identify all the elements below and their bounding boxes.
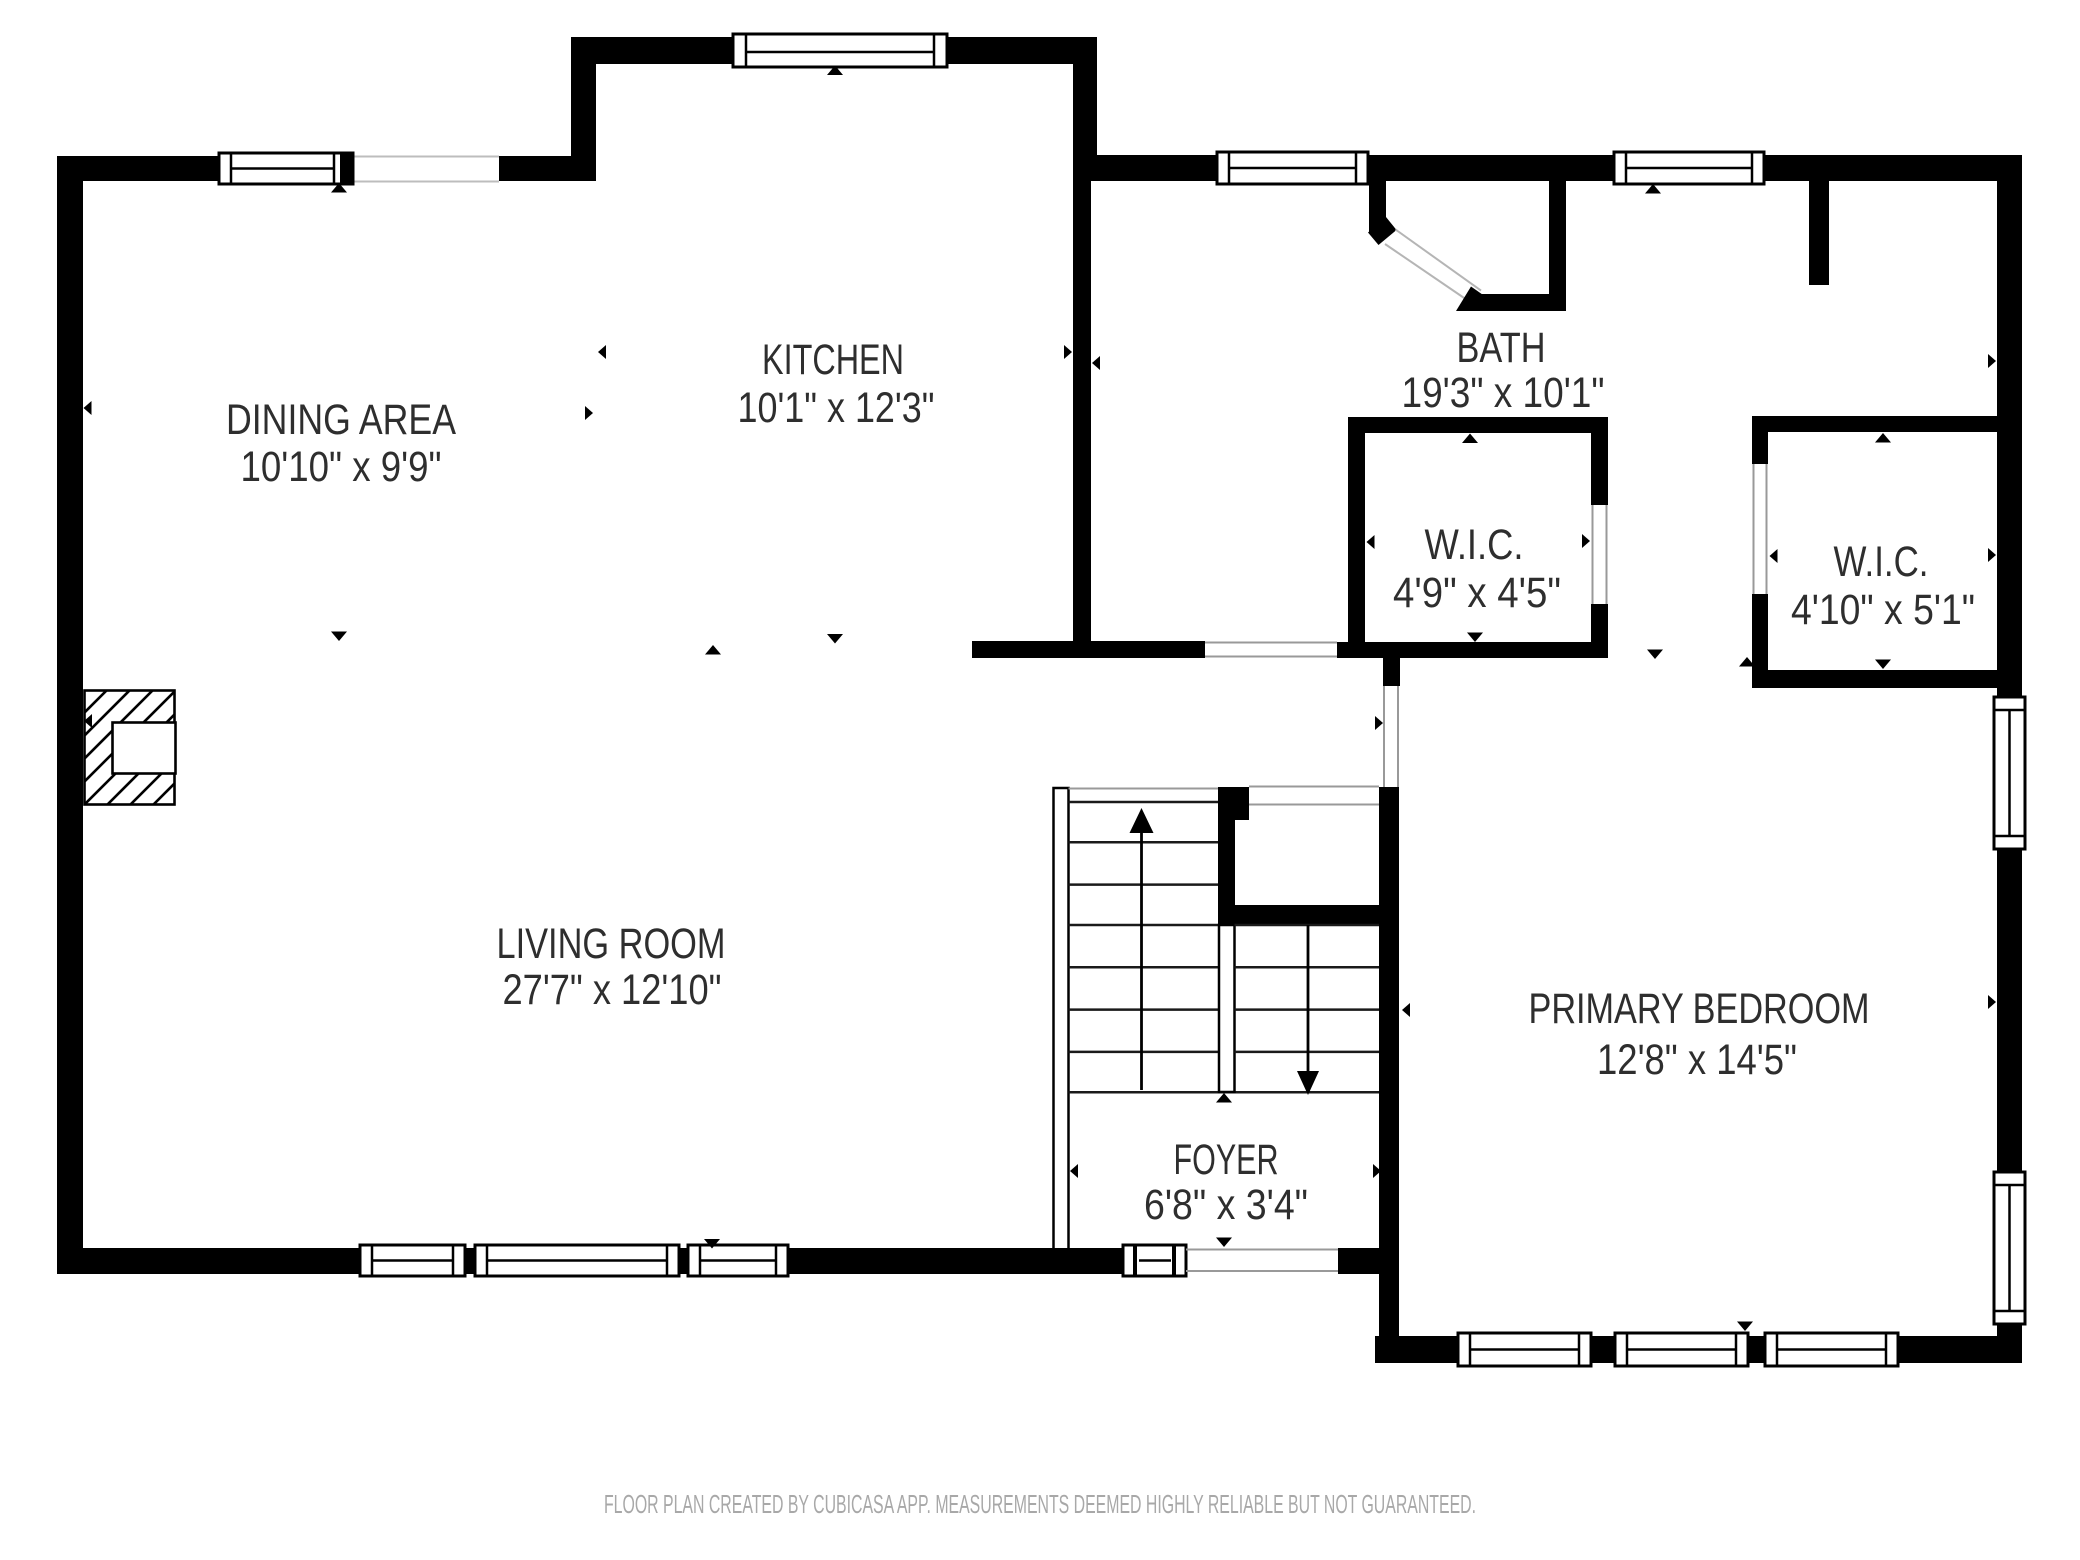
svg-text:BATH: BATH bbox=[1457, 324, 1546, 372]
svg-text:DINING AREA: DINING AREA bbox=[226, 396, 456, 444]
svg-text:W.I.C.: W.I.C. bbox=[1834, 538, 1929, 586]
svg-text:6'8" x 3'4": 6'8" x 3'4" bbox=[1144, 1181, 1308, 1229]
svg-text:FOYER: FOYER bbox=[1174, 1136, 1279, 1184]
svg-text:W.I.C.: W.I.C. bbox=[1425, 521, 1524, 569]
svg-text:10'1" x 12'3": 10'1" x 12'3" bbox=[738, 384, 935, 432]
svg-text:27'7" x 12'10": 27'7" x 12'10" bbox=[503, 966, 722, 1014]
svg-text:KITCHEN: KITCHEN bbox=[762, 336, 904, 384]
svg-text:10'10" x 9'9": 10'10" x 9'9" bbox=[241, 443, 442, 491]
svg-text:4'10" x 5'1": 4'10" x 5'1" bbox=[1791, 586, 1975, 634]
svg-text:4'9" x 4'5": 4'9" x 4'5" bbox=[1393, 569, 1561, 617]
svg-text:19'3" x 10'1": 19'3" x 10'1" bbox=[1402, 369, 1605, 417]
svg-text:12'8" x 14'5": 12'8" x 14'5" bbox=[1597, 1036, 1797, 1084]
svg-text:PRIMARY BEDROOM: PRIMARY BEDROOM bbox=[1529, 985, 1870, 1033]
svg-text:LIVING ROOM: LIVING ROOM bbox=[497, 920, 726, 968]
svg-text:FLOOR PLAN CREATED BY CUBICASA: FLOOR PLAN CREATED BY CUBICASA APP. MEAS… bbox=[604, 1489, 1476, 1519]
